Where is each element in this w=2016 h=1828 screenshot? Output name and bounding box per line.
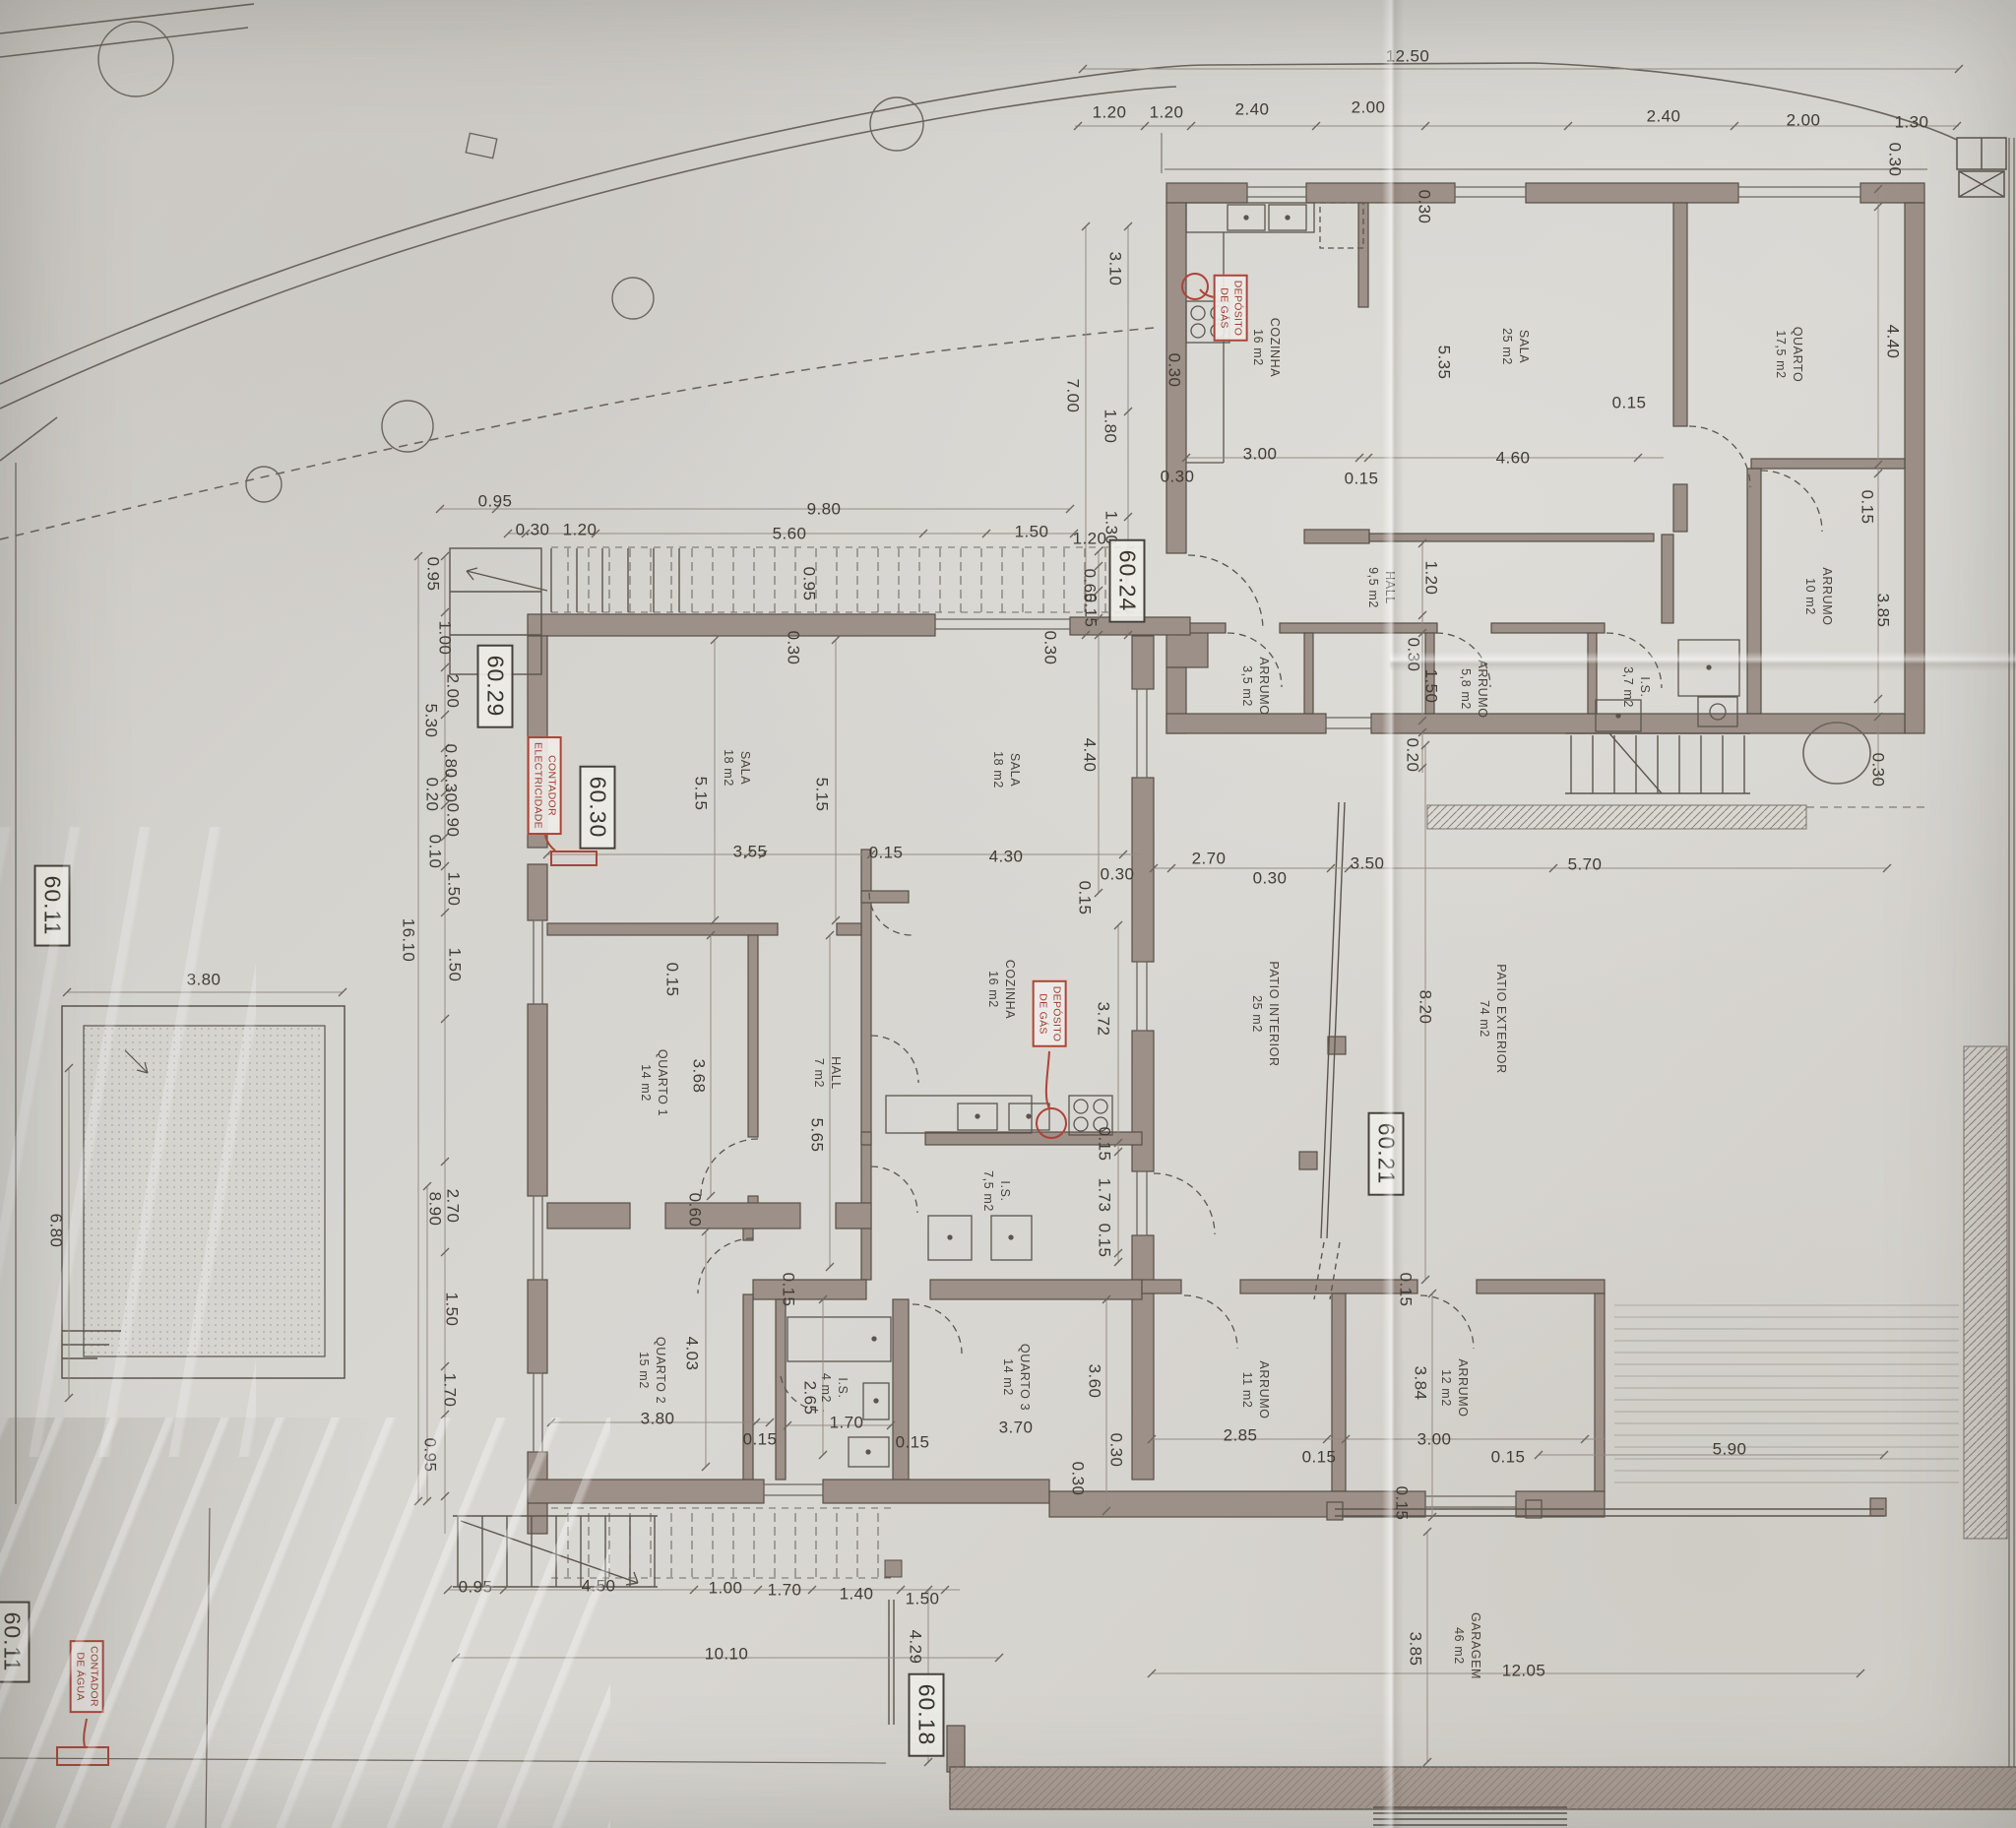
dim-label: 2.65	[802, 1381, 819, 1416]
room-label-arrumo: ARRUMO 10 m2	[1801, 567, 1835, 625]
utility-label: DEPÓSITO DE GÁS	[1213, 275, 1247, 342]
dim-label: 0.95	[478, 493, 513, 510]
dim-label: 1.00	[709, 1580, 743, 1597]
dim-label: 4.40	[1082, 738, 1099, 773]
dim-label: 5.60	[773, 526, 807, 542]
dim-label: 0.30	[1253, 870, 1288, 887]
dim-label: 8.90	[427, 1192, 444, 1227]
level-marker-60-21: 60.21	[1368, 1112, 1405, 1196]
dim-label: 5.30	[423, 704, 440, 738]
dim-label: 0.30	[1166, 353, 1183, 388]
dim-label: 4.60	[1496, 450, 1531, 467]
dim-label: 4.30	[989, 849, 1024, 865]
dim-label: 0.20	[424, 778, 441, 812]
dim-label: 0.15	[1083, 594, 1100, 628]
dim-label: 0.30	[1070, 1462, 1087, 1496]
dim-label: 2.00	[445, 674, 462, 709]
level-marker-60-18: 60.18	[909, 1673, 945, 1757]
dim-label: 1.00	[437, 621, 454, 656]
dim-label: 5.90	[1713, 1441, 1747, 1458]
dim-label: 0.15	[1394, 1486, 1411, 1521]
dim-label: 0.30	[1417, 190, 1433, 224]
dim-label: 3.70	[999, 1419, 1034, 1436]
dim-label: 1.70	[442, 1373, 459, 1408]
dim-label: 8.20	[1417, 990, 1434, 1025]
level-marker-60-30: 60.30	[580, 766, 616, 850]
room-label-hall: HALL 7 m2	[810, 1056, 844, 1090]
dim-label: 4.29	[908, 1630, 924, 1665]
room-label-patio-interior: PATIO INTERIOR 25 m2	[1248, 961, 1282, 1066]
dim-label: 6.80	[48, 1214, 65, 1248]
dim-label: 1.20	[563, 522, 598, 538]
dim-label: 1.50	[906, 1591, 940, 1607]
dim-label: 3.85	[1875, 594, 1892, 628]
utility-label: CONTADOR ELECTRICIDADE	[527, 736, 561, 835]
dim-label: 3.60	[1087, 1364, 1103, 1399]
dim-label: 7.00	[1065, 379, 1082, 413]
dim-label: 3.72	[1096, 1002, 1112, 1037]
utility-label: DEPÓSITO DE GÁS	[1032, 980, 1066, 1047]
dim-label: 3.50	[1351, 855, 1385, 872]
dim-label: 0.10	[427, 835, 444, 869]
level-marker-60-11: 60.11	[0, 1602, 31, 1683]
room-label-cozinha: COZINHA 16 m2	[1249, 318, 1283, 377]
dim-label: 1.40	[840, 1586, 874, 1603]
dim-label: 0.15	[1859, 490, 1876, 525]
dim-label: 1.80	[1102, 410, 1119, 444]
dim-label: 0.15	[1491, 1449, 1526, 1466]
dim-label: 0.30	[516, 522, 550, 538]
room-label-hall: HALL 9,5 m2	[1364, 567, 1398, 608]
dim-label: 2.85	[1224, 1427, 1258, 1444]
dim-label: 1.70	[830, 1415, 864, 1431]
dim-label: 10.10	[705, 1646, 749, 1663]
room-label-quarto-1: QUARTO 1 14 m2	[637, 1049, 670, 1116]
dim-label: 1.20	[1093, 104, 1127, 121]
dim-label: 0.60	[687, 1193, 704, 1228]
dim-label: 0.30	[1101, 866, 1135, 883]
dim-label: 2.70	[1192, 851, 1227, 867]
dim-label: 5.15	[693, 777, 710, 811]
dim-label: 3.85	[1408, 1632, 1424, 1667]
dim-label: 0.15	[781, 1273, 797, 1307]
dim-label: 2.40	[1647, 108, 1681, 125]
dim-label: 0.95	[422, 1438, 439, 1473]
dim-label: 1.50	[446, 872, 463, 907]
dim-label: 3.55	[733, 844, 768, 860]
dim-label: 2.40	[1235, 101, 1270, 118]
dim-label: 12.05	[1502, 1663, 1546, 1679]
dim-label: 5.35	[1436, 346, 1453, 380]
dim-label: 3.68	[691, 1059, 708, 1094]
dim-label: 0.30	[443, 769, 460, 803]
dim-label: 0.30	[1108, 1433, 1125, 1468]
room-label-quarto-2: QUARTO 2 15 m2	[635, 1337, 668, 1404]
dim-label: 2.00	[1352, 99, 1386, 116]
dim-label: 2.70	[445, 1189, 462, 1224]
room-label-patio-exterior: PATIO EXTERIOR 74 m2	[1476, 964, 1509, 1073]
dim-label: 1.50	[444, 1292, 461, 1327]
dim-label: 2.00	[1787, 112, 1821, 129]
dim-label: 0.15	[1398, 1273, 1415, 1307]
room-label-arrumo: ARRUMO 5,8 m2	[1457, 660, 1490, 718]
dim-label: 0.15	[743, 1431, 778, 1448]
dim-label: 12.50	[1386, 48, 1430, 65]
dim-label: 1.50	[1423, 669, 1440, 704]
room-label-sala: SALA 25 m2	[1498, 328, 1532, 365]
room-label-sala: SALA 18 m2	[720, 749, 753, 787]
dim-label: 0.95	[425, 557, 442, 592]
dim-label: 1.30	[1895, 114, 1929, 131]
dim-label: 4.03	[684, 1337, 701, 1371]
dim-label: 5.65	[809, 1118, 826, 1153]
dim-label: 3.80	[641, 1411, 675, 1427]
dim-label: 0.15	[1097, 1224, 1113, 1258]
dim-label: 0.30	[786, 631, 802, 665]
floorplan-sheet: 12.501.201.202.402.002.402.001.303.107.0…	[0, 0, 2016, 1828]
dim-label: 1.20	[1423, 561, 1440, 596]
dim-label: 3.80	[187, 972, 221, 988]
dim-label: 0.30	[1161, 469, 1195, 485]
dim-label: 0.15	[1077, 881, 1094, 915]
dim-label: 3.84	[1413, 1366, 1429, 1401]
room-label-arrumo: ARRUMO 3,5 m2	[1238, 657, 1272, 715]
room-label-i-s-: I.S. 3,7 m2	[1619, 666, 1653, 708]
room-label-quarto: QUARTO 17,5 m2	[1772, 327, 1805, 383]
dim-label: 1.73	[1097, 1178, 1113, 1213]
dim-label: 0.15	[1345, 471, 1379, 487]
dim-label: 0.15	[896, 1434, 930, 1451]
dim-label: 4.50	[582, 1578, 616, 1595]
dim-label: 1.20	[1150, 104, 1184, 121]
dim-label: 4.40	[1885, 325, 1902, 359]
dim-label: 0.15	[869, 845, 904, 861]
dim-label: 0.30	[1406, 638, 1422, 672]
room-label-arrumo: ARRUMO 11 m2	[1238, 1360, 1272, 1418]
dim-label: 5.70	[1568, 856, 1603, 873]
room-label-sala: SALA 18 m2	[989, 751, 1023, 788]
dim-label: 0.30	[1870, 753, 1887, 788]
level-marker-60-29: 60.29	[477, 645, 514, 728]
dim-label: 3.00	[1243, 446, 1278, 463]
room-label-quarto-3: QUARTO 3 14 m2	[999, 1344, 1033, 1411]
dim-label: 9.80	[807, 501, 842, 518]
dim-label: 1.50	[1015, 524, 1049, 540]
dim-label: 1.70	[768, 1582, 802, 1599]
level-marker-60-11: 60.11	[34, 865, 71, 947]
dim-label: 0.30	[1042, 631, 1059, 665]
room-label-arrumo: ARRUMO 12 m2	[1437, 1358, 1471, 1417]
room-label-i-s-: I.S. 4 m2	[817, 1373, 850, 1403]
dim-label: 5.15	[814, 778, 831, 812]
dim-label: 16.10	[401, 918, 417, 963]
dim-label: 1.50	[447, 948, 464, 982]
dim-label: 0.15	[1302, 1449, 1337, 1466]
dim-label: 0.20	[1405, 738, 1421, 773]
room-label-garagem: GARAGEM 46 m2	[1450, 1612, 1483, 1679]
dim-label: 3.10	[1107, 252, 1124, 286]
room-label-cozinha: COZINHA 16 m2	[984, 960, 1018, 1019]
dim-label: 0.15	[1097, 1127, 1113, 1162]
dim-label: 0.95	[801, 567, 818, 601]
dim-label: 0.90	[445, 803, 462, 838]
dim-label: 3.00	[1417, 1431, 1452, 1448]
utility-label: CONTADOR DE ÁGUA	[69, 1640, 103, 1713]
dim-label: 0.15	[664, 963, 681, 997]
dim-label: 0.30	[1887, 143, 1904, 177]
room-label-i-s-: I.S. 7,5 m2	[979, 1170, 1013, 1212]
labels-layer: 12.501.201.202.402.002.402.001.303.107.0…	[0, 0, 2016, 1828]
dim-label: 0.95	[459, 1579, 493, 1596]
level-marker-60-24: 60.24	[1109, 539, 1146, 623]
dim-label: 0.15	[1612, 395, 1647, 411]
